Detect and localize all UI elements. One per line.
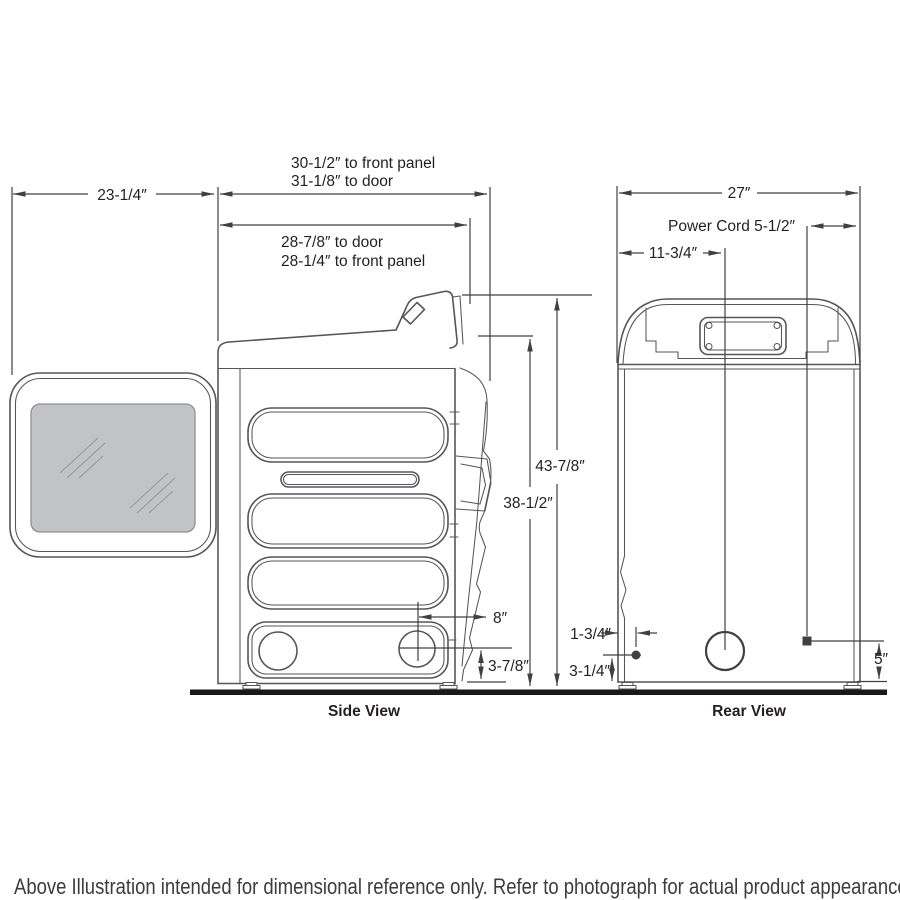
dim-cabinet-height-label: 38-1/2″ <box>503 495 553 512</box>
rear-feet <box>619 683 861 690</box>
left-port-circle <box>259 632 297 670</box>
dim-exhaust-height: 3-7/8″ <box>467 651 529 683</box>
dim-overall-width: 27″ <box>617 185 860 363</box>
dim-connection-height-label: 3-1/4″ <box>569 663 610 680</box>
cutout-corner-screws <box>706 323 780 350</box>
console-recess <box>646 308 838 359</box>
rear-cabinet <box>618 299 861 689</box>
open-door <box>10 373 216 557</box>
side-cabinet <box>218 291 491 689</box>
dim-exhaust-from-left: 11-3/4″ <box>619 245 725 650</box>
connection-marker-dot <box>632 651 641 660</box>
console-cutout-inner <box>705 322 782 350</box>
cabinet-front-top <box>218 330 396 684</box>
dim-overall-height-label: 43-7/8″ <box>535 458 585 475</box>
exhaust-port-circle <box>399 631 435 667</box>
dim-lower-depth: 28-7/8″ to door 28-1/4″ to front panel <box>220 218 470 304</box>
appliance-dimension-diagram: 23-1/4″ 30-1/2″ to front panel 31-1/8″ t… <box>0 0 900 900</box>
connection-marker <box>603 651 641 660</box>
dim-exhaust-from-left-label: 11-3/4″ <box>649 245 698 262</box>
rear-vent-ticks <box>449 412 459 640</box>
dim-connection-offset-label: 1-3/4″ <box>570 626 611 643</box>
dim-power-cord: Power Cord 5-1/2″ <box>668 218 856 646</box>
dim-depth-front-panel-label: 30-1/2″ to front panel <box>291 155 435 172</box>
side-view: 23-1/4″ 30-1/2″ to front panel 31-1/8″ t… <box>10 155 592 720</box>
console-cutout-outer <box>700 318 786 355</box>
dim-connection-offset: 1-3/4″ <box>570 626 657 647</box>
dim-cord-height: 5″ <box>811 641 889 682</box>
dim-power-cord-label: Power Cord 5-1/2″ <box>668 218 795 235</box>
dim-overall-width-label: 27″ <box>728 185 751 202</box>
door-window-glass <box>31 404 195 532</box>
footnote-text: Above Illustration intended for dimensio… <box>14 876 900 900</box>
floor-line <box>190 690 887 696</box>
dim-lower-depth-door-label: 28-7/8″ to door <box>281 234 383 251</box>
dim-door-open-depth: 23-1/4″ <box>12 187 218 375</box>
dim-exhaust-height-label: 3-7/8″ <box>488 658 529 675</box>
dim-door-open-depth-label: 23-1/4″ <box>97 187 147 204</box>
dim-cabinet-height: 38-1/2″ <box>478 336 553 686</box>
power-cord-marker-square <box>803 637 812 646</box>
rear-view: 27″ Power Cord 5-1/2″ 11-3/4″ 1-3/4″ <box>569 185 888 720</box>
dim-depth-door-label: 31-1/8″ to door <box>291 173 393 190</box>
dim-connection-height: 3-1/4″ <box>569 659 612 682</box>
rear-left-inner-edge <box>621 369 627 682</box>
dim-exhaust-offset-label: 8″ <box>493 610 508 627</box>
rear-view-caption: Rear View <box>712 703 787 720</box>
dim-cord-height-label: 5″ <box>874 651 889 668</box>
dim-lower-depth-front-panel-label: 28-1/4″ to front panel <box>281 253 425 270</box>
side-view-caption: Side View <box>328 703 401 720</box>
rear-duct-slant <box>462 402 486 666</box>
